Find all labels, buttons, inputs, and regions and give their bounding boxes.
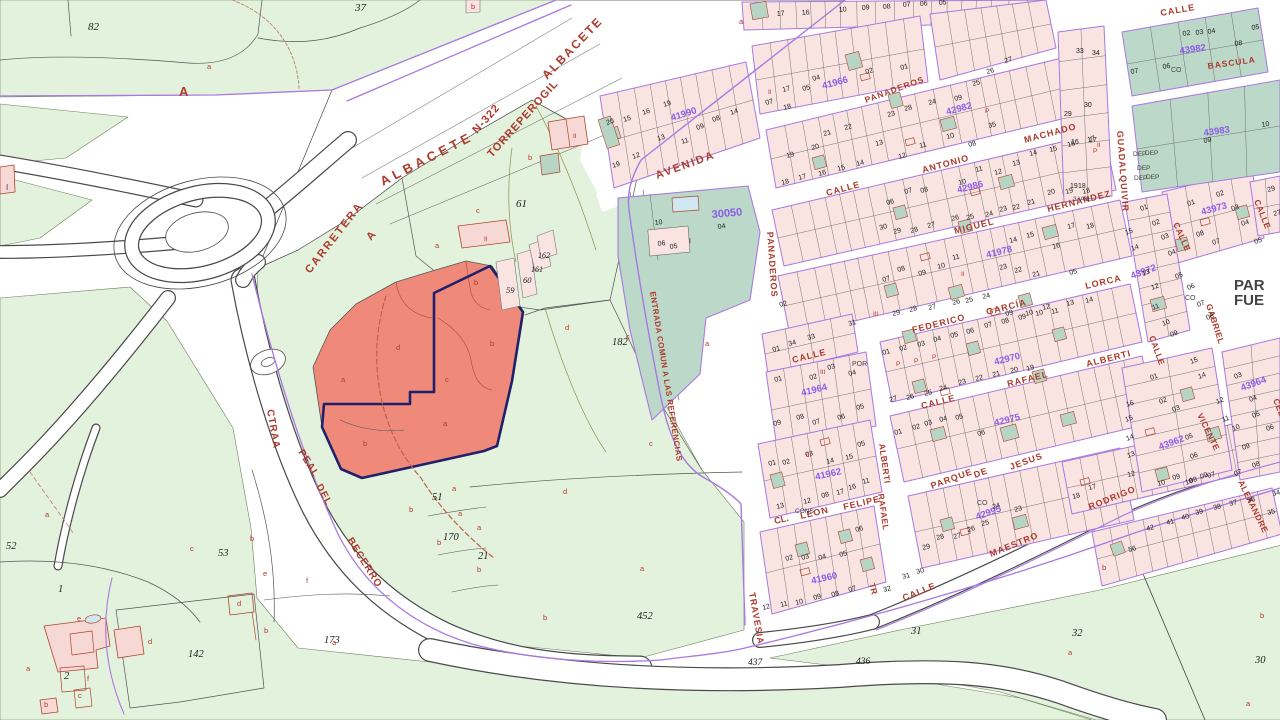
urban-parcel-number: 27 <box>1273 209 1280 218</box>
misc-label: DEP <box>1146 174 1159 181</box>
floor-mark: III <box>806 452 812 459</box>
parcel-number: 437 <box>748 658 764 668</box>
urban-parcel-number: 06 <box>1162 63 1171 71</box>
urban-parcel-number: 19 <box>1070 183 1078 190</box>
urban-parcel-number: 06 <box>657 240 666 248</box>
misc-label: POR <box>852 361 867 368</box>
urban-parcel-number: 03 <box>1195 29 1204 37</box>
subparcel-letter: b <box>363 439 367 448</box>
parcel-number: 82 <box>88 21 100 33</box>
subparcel-letter: d <box>148 637 152 646</box>
building <box>40 698 58 714</box>
floor-mark: P <box>914 358 918 365</box>
subparcel-letter: b <box>474 278 478 287</box>
subparcel-letter: b <box>490 339 494 348</box>
floor-mark: P <box>985 108 989 115</box>
subparcel-letter: b <box>44 700 48 709</box>
urban-parcel-number: 29 <box>1064 111 1072 118</box>
floor-mark: II <box>768 89 772 96</box>
subparcel-letter: b <box>1102 563 1106 572</box>
parcel-number: 452 <box>637 611 654 622</box>
urban-parcel-number: 30 <box>1084 102 1092 109</box>
subparcel-letter: b <box>1260 611 1264 620</box>
misc-label: I <box>689 238 691 245</box>
misc-label: CO <box>1185 295 1196 302</box>
subparcel-letter: b <box>250 534 254 543</box>
urban-parcel-number: 09 <box>1203 137 1212 145</box>
urban-parcel-number: 10 <box>839 6 847 14</box>
pool <box>672 196 699 212</box>
patio <box>540 153 560 175</box>
street-label: A <box>179 84 189 99</box>
urban-parcel-number: 08 <box>883 3 891 11</box>
urban-parcel-number: 07 <box>903 1 911 9</box>
map-viewport[interactable]: ALBACETEACARRETERAAN-322TORREPEROGILALBA… <box>0 0 1280 720</box>
parcel-number: 21 <box>478 551 489 562</box>
floor-mark: II <box>1097 142 1101 149</box>
parcel-number: 53 <box>218 548 229 559</box>
urban-parcel-number: 34 <box>1092 50 1100 57</box>
floor-mark: II <box>961 271 965 278</box>
misc-label: FUE <box>1234 292 1264 309</box>
cadastral-map[interactable]: ALBACETEACARRETERAAN-322TORREPEROGILALBA… <box>0 0 1280 720</box>
urban-parcel-number: 07 <box>1130 68 1139 76</box>
subparcel-letter: e <box>263 569 267 578</box>
parcel-number: 30 <box>1254 655 1266 666</box>
parcel-number: 1 <box>58 584 63 595</box>
parcel-number: 32 <box>1071 628 1083 639</box>
parcel-number: 2 <box>64 671 70 682</box>
misc-label: CONS <box>795 508 814 515</box>
parcel-number: 170 <box>443 532 460 543</box>
floor-mark: P <box>932 354 936 361</box>
parcel-number: 51 <box>432 492 443 503</box>
subparcel-letter: b <box>437 538 441 547</box>
parcel-number: 61 <box>516 198 527 210</box>
subparcel-letter: d <box>565 323 569 332</box>
floor-mark: P <box>896 361 900 368</box>
subparcel-letter: c <box>626 332 630 341</box>
floor-mark: II <box>573 133 577 140</box>
subparcel-letter: c <box>649 439 653 448</box>
urban-parcel-number: 33 <box>1076 48 1084 55</box>
parcel-number: 161 <box>531 265 543 274</box>
urban-parcel-number: 16 <box>1071 139 1079 146</box>
subparcel-letter: c <box>476 206 480 215</box>
misc-label: DEP <box>1145 150 1158 157</box>
urban-parcel-number: 04 <box>1207 28 1216 36</box>
floor-mark: II <box>484 236 488 243</box>
urban-parcel-number: 06 <box>920 0 928 8</box>
parcel-number: 162 <box>538 251 550 260</box>
urban-parcel-number: 10 <box>1261 121 1270 129</box>
subparcel-letter: b <box>528 153 532 162</box>
floor-mark: III <box>820 369 826 376</box>
subparcel-letter: d <box>563 487 567 496</box>
urban-parcel-number: 17 <box>1089 137 1097 144</box>
subparcel-letter: b <box>409 505 413 514</box>
urban-parcel-number: 05 <box>1251 24 1260 32</box>
misc-label: CO <box>1171 67 1182 74</box>
urban-parcel-number: 05 <box>939 0 947 7</box>
urban-parcel-number: 08 <box>1234 40 1243 48</box>
subparcel-letter: e <box>77 614 81 623</box>
parcel-number: 142 <box>188 649 205 660</box>
misc-label: 3 VOL <box>1073 196 1092 203</box>
building <box>114 626 144 658</box>
parcel-number: 31 <box>910 626 922 637</box>
misc-label: CO <box>977 500 988 507</box>
urban-parcel-number: 05 <box>669 243 678 251</box>
subparcel-letter: b <box>477 565 481 574</box>
urban-parcel-number: 17 <box>777 10 785 18</box>
parcel-number: 436 <box>856 657 871 667</box>
urban-parcel-number: 02 <box>1182 30 1191 38</box>
subparcel-letter: d <box>396 343 400 352</box>
misc-label: I <box>6 183 8 192</box>
parcel-number: 60 <box>523 275 532 285</box>
urban-parcel-number: 09 <box>862 4 870 12</box>
subparcel-letter: c <box>78 691 82 700</box>
parcel-number: 37 <box>354 2 367 14</box>
subparcel-letter: d <box>237 599 241 608</box>
subparcel-letter: b <box>543 613 547 622</box>
subparcel-letter: b <box>264 626 268 635</box>
subparcel-letter: c <box>190 544 194 553</box>
misc-label: DEP <box>1137 165 1150 172</box>
urban-parcel-number: 18 <box>1078 183 1086 190</box>
parcel-number: 59 <box>506 285 515 295</box>
patio <box>750 1 769 20</box>
urban-parcel-number: 04 <box>717 223 726 231</box>
small-parcel <box>648 226 690 256</box>
parcel-number: 52 <box>6 541 17 552</box>
floor-mark: III <box>873 311 879 318</box>
urban-parcel-number: 10 <box>654 219 663 227</box>
floor-mark: P <box>1093 148 1097 155</box>
urban-parcel-number: 16 <box>802 9 810 17</box>
subparcel-letter: b <box>471 2 475 11</box>
subparcel-letter: c <box>445 375 449 384</box>
